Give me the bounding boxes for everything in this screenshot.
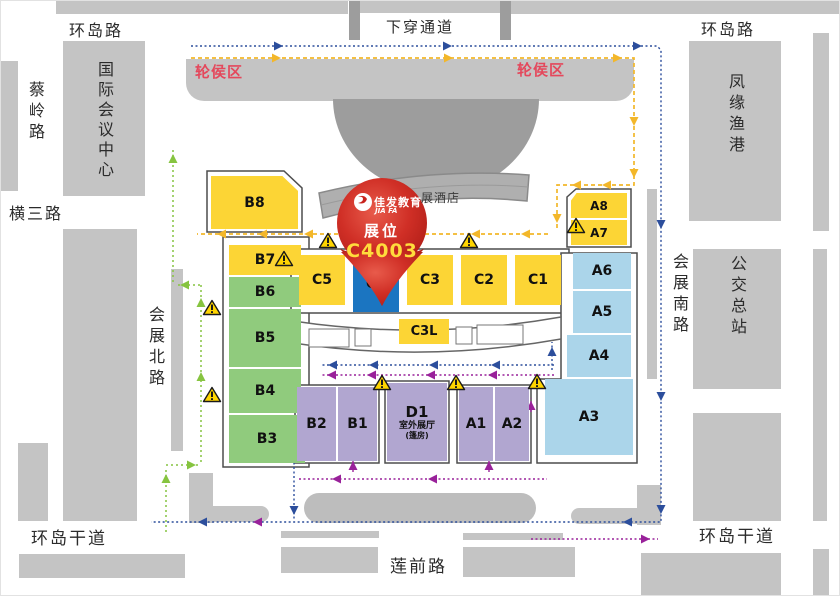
hall-C3L: C3L [399,319,449,344]
queue-area-label-left: 轮侯区 [195,61,243,82]
hall-A1: A1 [459,387,493,461]
road-ring-main-right-label: 环岛干道 [699,522,775,547]
hall-A3: A3 [545,379,633,455]
exhibition-venue-map: B8 B7 B6 B5 B4 B3 C5 C4 C3 C2 C1 C3L A8 … [0,0,840,596]
underpass-pillar-right [500,1,511,40]
hall-D1: D1 室外展厅 (篷房) [387,383,447,461]
hall-A6: A6 [573,253,631,289]
road-hengsan-label: 横三路 [9,200,63,224]
hall-A1-A2-group: A1 A2 [459,387,529,461]
hall-B4: B4 [229,369,301,413]
road-south-label: 会展南路 [667,253,691,337]
underpass-top-strip [360,1,500,13]
hall-C1: C1 [515,255,561,305]
hall-B1: B1 [338,387,377,461]
right-lower-block [693,413,781,521]
dropoff-semicircle [333,99,539,193]
hall-A8: A8 [571,193,627,218]
hall-C2: C2 [461,255,507,305]
sw-median-horizontal [189,506,269,522]
pin-logo-en: JIA FA [375,207,425,215]
top-right-road-strip [511,1,840,14]
hall-C5: C5 [299,255,345,305]
road-underpass-label: 下穿通道 [386,16,454,37]
bottom-left-strip [19,554,185,578]
right-edge-strip-bottom [813,549,829,596]
hall-C3: C3 [407,255,453,305]
right-edge-strip-top [813,33,829,231]
hall-A5: A5 [573,291,631,333]
hall-B2: B2 [297,387,336,461]
hall-A7: A7 [571,220,627,245]
west-road-median [171,269,183,451]
bottom-left-block-a [18,443,48,521]
warning-icon [461,234,478,248]
pin-booth-label: 展位 [352,220,412,241]
bottom-block-a [281,547,378,573]
bottom-strip-b [463,533,563,540]
hall-C4-highlighted: C4 [353,255,399,312]
hall-B3: B3 [229,415,305,463]
route-green-arrows [162,154,206,483]
hall-D1-annex-line1: 室外展厅 [399,421,435,431]
east-road-median [647,189,657,379]
road-lianqian-label: 莲前路 [390,552,447,577]
hall-B8: B8 [211,176,298,229]
hall-B6: B6 [229,277,301,307]
se-median-horizontal [571,508,641,524]
bottom-right-block [641,553,781,596]
road-cailing-label: 蔡岭路 [23,81,47,144]
left-mid-block [63,229,137,521]
top-left-road-strip [56,1,348,14]
right-edge-strip-mid [813,249,827,521]
icc-label: 国际会议中心 [92,61,116,181]
hall-A2: A2 [495,387,529,461]
fishing-port-label: 凤缘渔港 [723,73,747,157]
hall-A4: A4 [567,335,631,377]
bottom-strip-a [281,531,379,538]
hall-B7: B7 [229,245,301,275]
road-ring-left-label: 环岛路 [69,17,123,41]
warning-icon [320,234,337,248]
hall-B5: B5 [229,309,301,367]
median-island [304,493,536,523]
road-north-label: 会展北路 [143,306,167,390]
left-edge-strip [1,61,18,191]
se-median-vertical [637,485,661,525]
queue-area [186,59,634,101]
underpass-pillar-left [349,1,360,40]
hall-D1-annex-line2: (篷房) [405,431,428,441]
queue-area-label-right: 轮侯区 [517,59,565,80]
hotel-label-partial: 展酒店 [421,189,460,206]
bus-terminal-label: 公交总站 [725,255,749,339]
warning-icon [204,388,221,402]
warning-icon [204,301,221,315]
bottom-block-b [463,547,575,577]
warning-icon [529,375,546,389]
hall-D1-label: D1 [406,403,429,421]
road-ring-main-left-label: 环岛干道 [31,524,107,549]
pin-booth-number: C4003 [345,240,419,262]
road-ring-right-label: 环岛路 [701,16,755,40]
hall-B2-B1-group: B2 B1 [297,387,377,461]
